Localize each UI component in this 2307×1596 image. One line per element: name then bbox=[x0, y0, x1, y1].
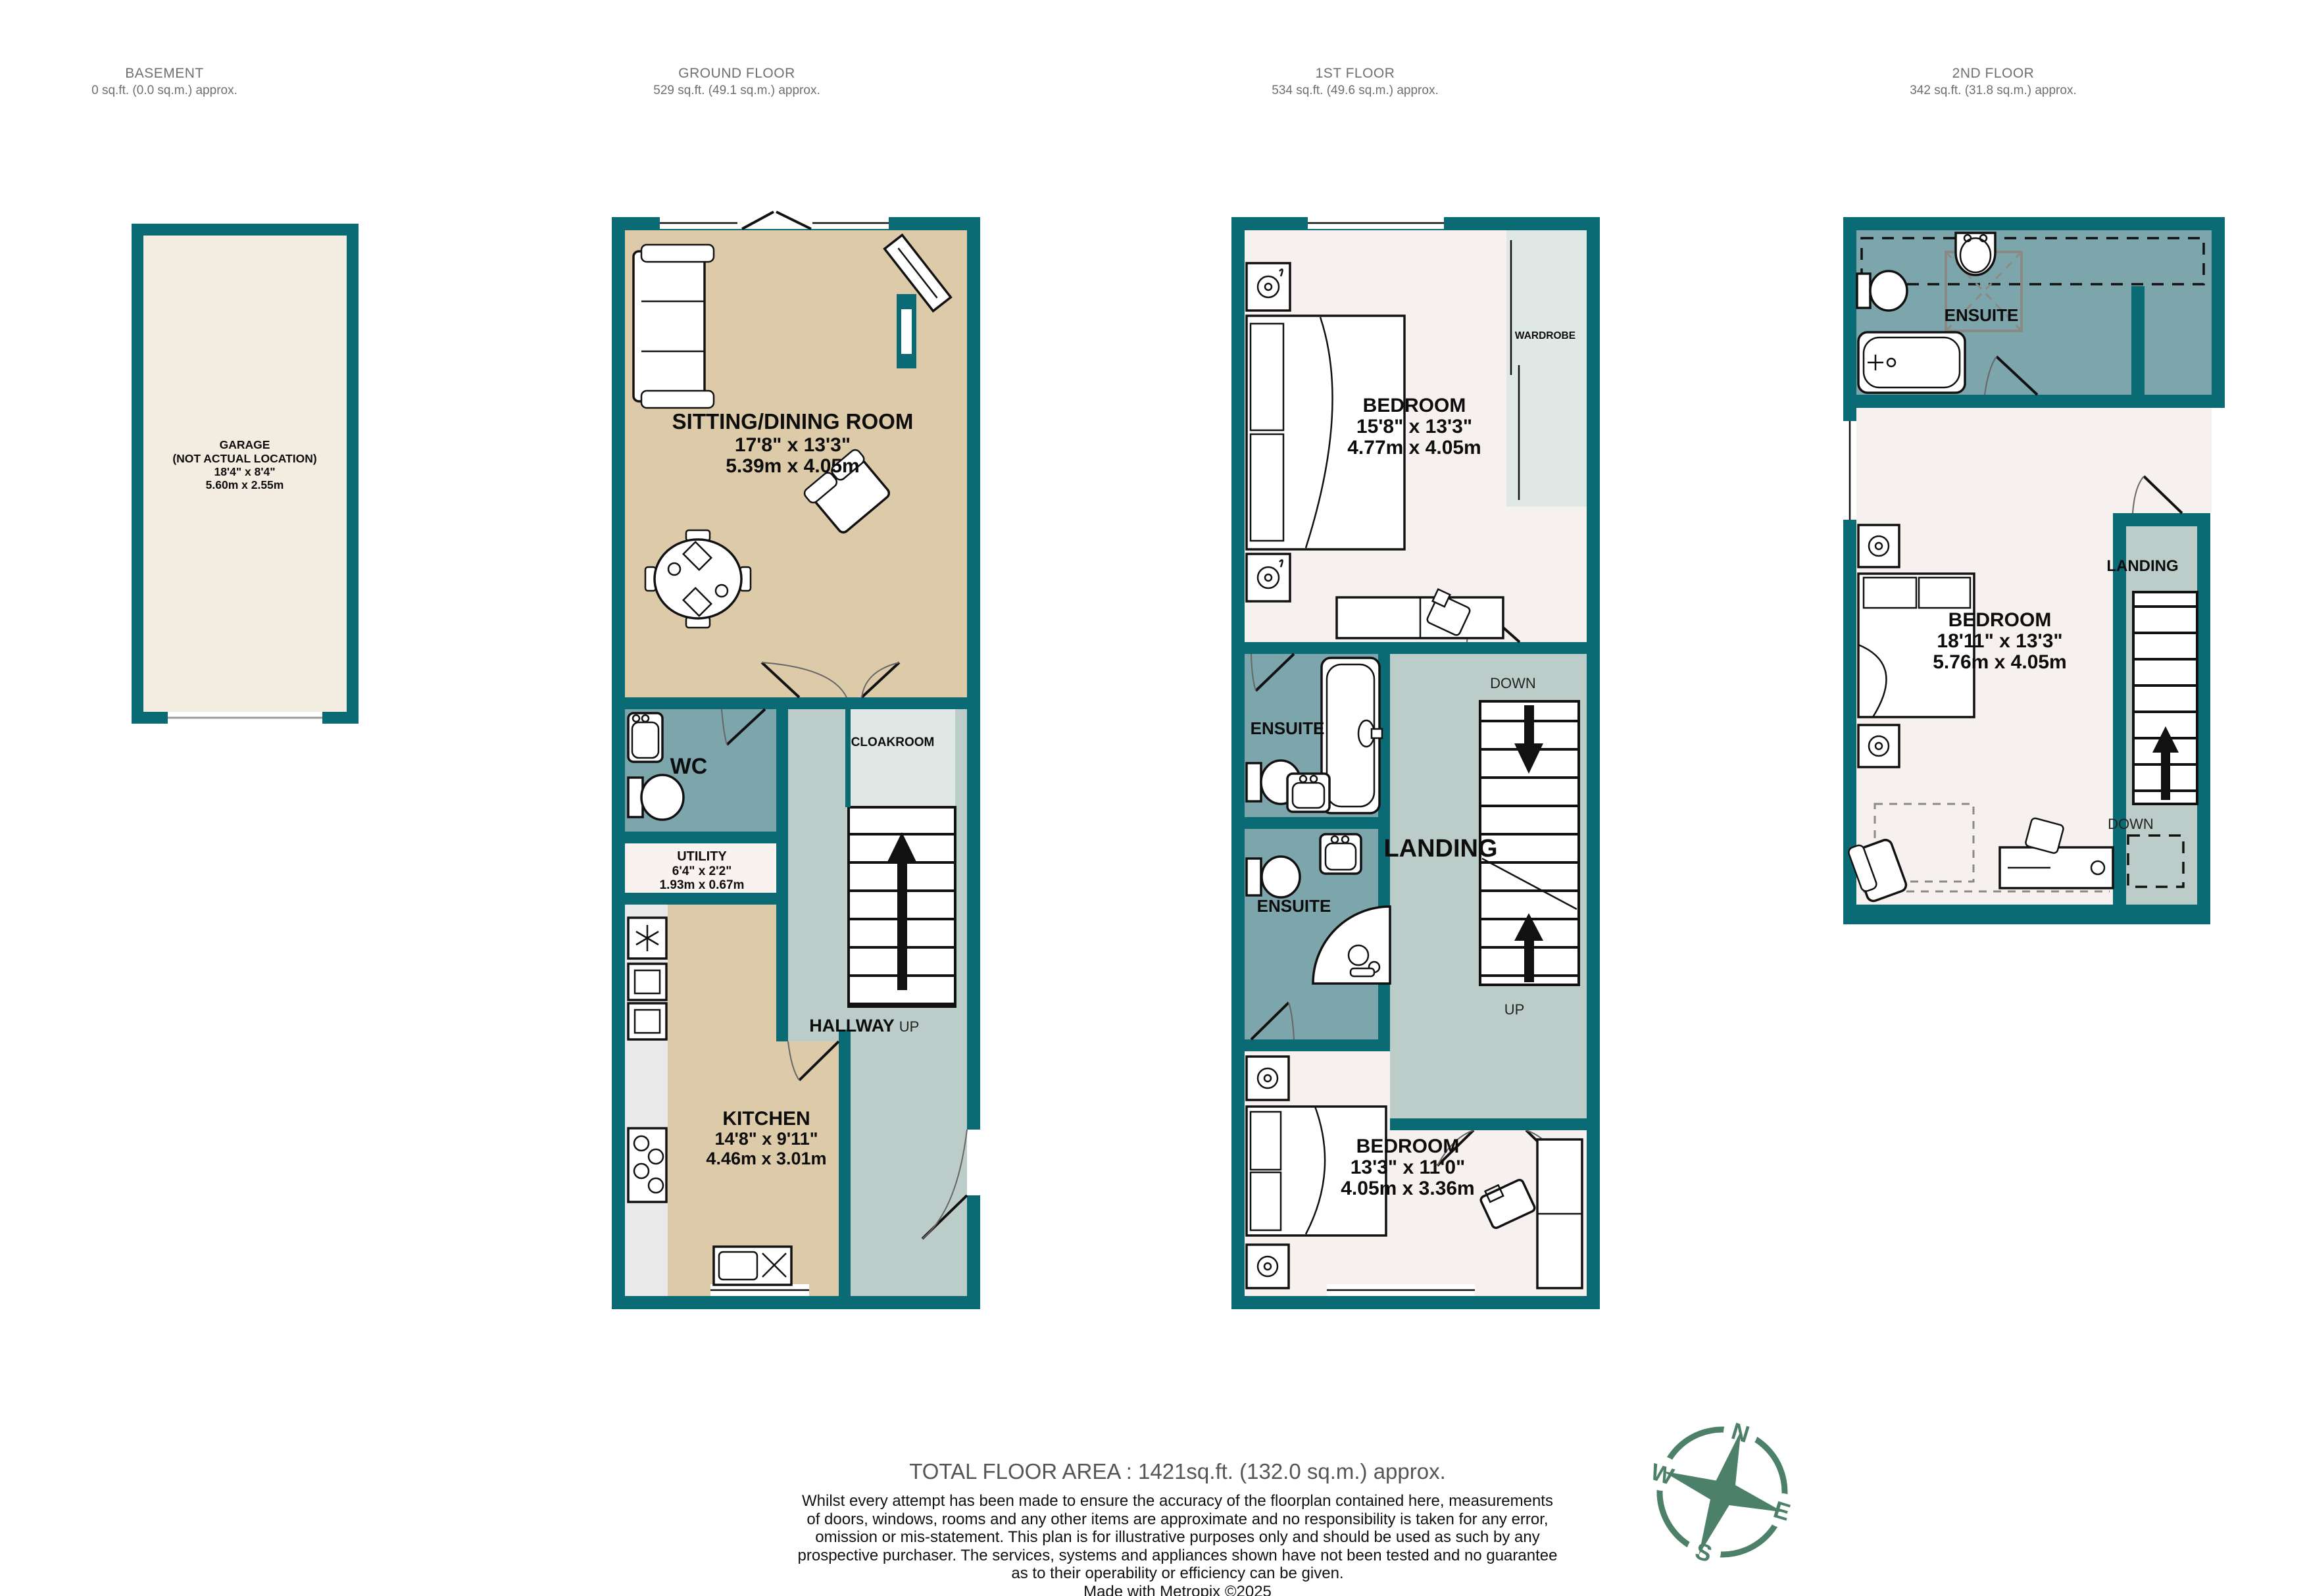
first-floor-header: 1ST FLOOR 534 sq.ft. (49.6 sq.m.) approx… bbox=[1125, 66, 1585, 98]
room-dims-imperial: 6'4" x 2'2" bbox=[672, 864, 732, 878]
footer: TOTAL FLOOR AREA : 1421sq.ft. (132.0 sq.… bbox=[520, 1459, 1835, 1596]
room-dims-imperial: 15'8" x 13'3" bbox=[1356, 416, 1472, 437]
wall bbox=[1390, 1118, 1474, 1130]
toilet-icon bbox=[628, 775, 683, 820]
room-label: ENSUITE bbox=[1257, 896, 1331, 916]
chimney-recess bbox=[901, 309, 912, 354]
hob-icon bbox=[628, 1128, 666, 1202]
floor-area: 529 sq.ft. (49.1 sq.m.) approx. bbox=[507, 84, 967, 98]
cloakroom-area bbox=[849, 709, 955, 807]
garage-dims-imperial: 18'4" x 8'4" bbox=[214, 465, 275, 478]
wall bbox=[1520, 642, 1587, 654]
ground-floor-header: GROUND FLOOR 529 sq.ft. (49.1 sq.m.) app… bbox=[507, 66, 967, 98]
wardrobe-icon bbox=[1537, 1139, 1582, 1288]
floor-title: GROUND FLOOR bbox=[507, 66, 967, 82]
window bbox=[1843, 421, 1856, 520]
room-label: BEDROOM bbox=[1948, 609, 2052, 631]
freezer-icon bbox=[628, 918, 666, 959]
disclaimer-line: prospective purchaser. The services, sys… bbox=[520, 1547, 1835, 1565]
wall bbox=[2131, 286, 2145, 395]
basement-header: BASEMENT 0 sq.ft. (0.0 sq.m.) approx. bbox=[0, 66, 395, 98]
room-label: LANDING bbox=[2106, 557, 2178, 575]
room-label: WC bbox=[670, 754, 708, 779]
garage-dims-metric: 5.60m x 2.55m bbox=[206, 478, 284, 491]
wall bbox=[1294, 1039, 1390, 1051]
disclaimer-line: as to their operability or efficiency ca… bbox=[520, 1564, 1835, 1583]
room-dims-metric: 5.39m x 4.05m bbox=[726, 455, 859, 477]
basement-plan: GARAGE (NOT ACTUAL LOCATION) 18'4" x 8'4… bbox=[122, 214, 372, 740]
credit-line: Made with Metropix ©2025 bbox=[520, 1583, 1835, 1596]
stairs-direction-label: DOWN bbox=[1490, 675, 1536, 691]
room-dims-metric: 4.05m x 3.36m bbox=[1341, 1178, 1474, 1199]
room-label: ENSUITE bbox=[1945, 305, 2019, 325]
sink-icon bbox=[1287, 774, 1329, 812]
kitchen-sink-icon bbox=[714, 1247, 791, 1285]
nightstand-icon bbox=[1858, 725, 1899, 767]
bedroom-top bbox=[1856, 408, 2212, 513]
wall bbox=[1245, 642, 1251, 654]
stairs-direction-label: DOWN bbox=[2108, 816, 2154, 832]
wall bbox=[776, 709, 788, 1041]
disclaimer-line: omission or mis-statement. This plan is … bbox=[520, 1528, 1835, 1547]
room-label: CLOAKROOM bbox=[851, 736, 935, 749]
wall bbox=[1856, 395, 1985, 408]
floor-area: 342 sq.ft. (31.8 sq.m.) approx. bbox=[1763, 84, 2223, 98]
nightstand-icon bbox=[1247, 263, 1290, 311]
room-dims-imperial: 18'11" x 13'3" bbox=[1937, 630, 2062, 652]
window bbox=[1308, 217, 1444, 229]
disclaimer: Whilst every attempt has been made to en… bbox=[520, 1492, 1835, 1596]
wall bbox=[1245, 1039, 1251, 1051]
room-dims-imperial: 13'3" x 11'0" bbox=[1351, 1157, 1466, 1178]
first-floor-plan: BEDROOM 15'8" x 13'3" 4.77m x 4.05m WARD… bbox=[1222, 211, 1616, 1322]
floorplan-page: BASEMENT 0 sq.ft. (0.0 sq.m.) approx. GR… bbox=[0, 0, 2307, 1596]
wall bbox=[845, 709, 851, 807]
second-floor-header: 2ND FLOOR 342 sq.ft. (31.8 sq.m.) approx… bbox=[1763, 66, 2223, 98]
bath-icon bbox=[1322, 658, 1382, 813]
wall bbox=[1294, 642, 1467, 654]
room-label: BEDROOM bbox=[1363, 395, 1466, 416]
wall bbox=[625, 832, 776, 843]
window bbox=[1327, 1284, 1475, 1296]
wall bbox=[625, 697, 722, 709]
room-label: WARDROBE bbox=[1515, 330, 1575, 341]
disclaimer-line: Whilst every attempt has been made to en… bbox=[520, 1492, 1835, 1510]
room-label: HALLWAY bbox=[809, 1016, 895, 1035]
sofa-icon bbox=[633, 245, 714, 408]
desk-icon bbox=[1337, 589, 1503, 638]
wall bbox=[847, 697, 862, 709]
room-dims-metric: 1.93m x 0.67m bbox=[660, 878, 745, 892]
room-label: UTILITY bbox=[677, 849, 727, 864]
floor-title: 2ND FLOOR bbox=[1763, 66, 2223, 82]
wall bbox=[1245, 817, 1390, 829]
room-label: BEDROOM bbox=[1356, 1135, 1460, 1157]
sink-icon bbox=[628, 713, 662, 762]
floor-area: 0 sq.ft. (0.0 sq.m.) approx. bbox=[0, 84, 395, 98]
room-label: SITTING/DINING ROOM bbox=[672, 409, 914, 434]
french-doors bbox=[737, 212, 812, 229]
stairs-direction-label: UP bbox=[1504, 1001, 1525, 1018]
window bbox=[812, 217, 889, 229]
nightstand-icon bbox=[1858, 525, 1899, 567]
ground-floor-plan: SITTING/DINING ROOM 17'8" x 13'3" 5.39m … bbox=[602, 211, 997, 1322]
wall bbox=[2037, 395, 2212, 408]
garage-note: (NOT ACTUAL LOCATION) bbox=[172, 452, 316, 465]
toilet-icon bbox=[1247, 857, 1300, 897]
wall bbox=[2126, 513, 2133, 526]
stairs-direction-label: UP bbox=[899, 1018, 920, 1035]
wall bbox=[765, 697, 799, 709]
disclaimer-line: of doors, windows, rooms and any other i… bbox=[520, 1510, 1835, 1529]
nightstand-icon bbox=[1247, 1245, 1289, 1288]
bath-icon bbox=[1858, 332, 1965, 393]
floor-area: 534 sq.ft. (49.6 sq.m.) approx. bbox=[1125, 84, 1585, 98]
wall bbox=[839, 1030, 851, 1296]
room-dims-imperial: 14'8" x 9'11" bbox=[714, 1129, 818, 1149]
wall bbox=[2182, 513, 2197, 526]
room-dims-metric: 4.77m x 4.05m bbox=[1347, 437, 1481, 459]
room-dims-imperial: 17'8" x 13'3" bbox=[735, 434, 851, 456]
wall bbox=[625, 893, 788, 905]
room-label: KITCHEN bbox=[722, 1108, 810, 1130]
room-dims-metric: 5.76m x 4.05m bbox=[1933, 651, 2066, 673]
sink-icon bbox=[1956, 233, 1995, 275]
sink-icon bbox=[1320, 834, 1361, 874]
room-dims-metric: 4.46m x 3.01m bbox=[706, 1149, 826, 1168]
wall bbox=[911, 697, 967, 709]
room-label: ENSUITE bbox=[1251, 718, 1325, 738]
room-label: LANDING bbox=[1383, 835, 1497, 862]
total-floor-area: TOTAL FLOOR AREA : 1421sq.ft. (132.0 sq.… bbox=[520, 1459, 1835, 1484]
wall bbox=[1526, 1118, 1587, 1130]
window bbox=[660, 217, 737, 229]
second-floor-plan: ENSUITE BEDROOM 18'11" x 13'3" 5.76m x 4… bbox=[1833, 211, 2241, 934]
nightstand-icon bbox=[1247, 554, 1290, 601]
floor-title: 1ST FLOOR bbox=[1125, 66, 1585, 82]
floor-title: BASEMENT bbox=[0, 66, 395, 82]
toilet-icon bbox=[1857, 271, 1907, 311]
nightstand-icon bbox=[1247, 1057, 1289, 1100]
garage-label: GARAGE bbox=[220, 438, 270, 451]
